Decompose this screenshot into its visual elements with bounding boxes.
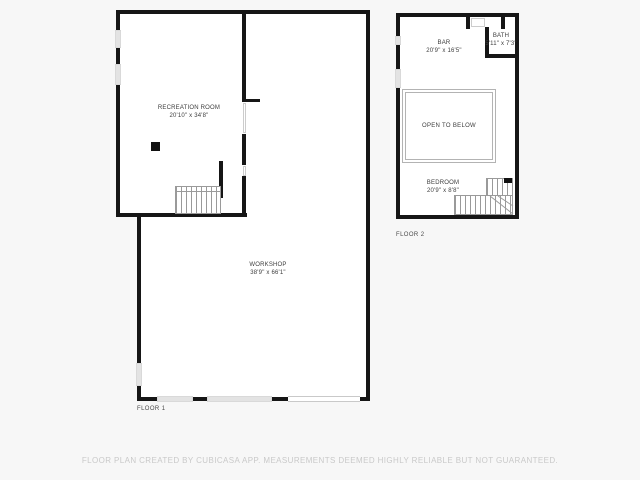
window-marker [136, 363, 142, 386]
open-to-below-area: OPEN TO BELOW [402, 89, 496, 163]
floor2-caption: FLOOR 2 [396, 232, 424, 238]
wall-right [366, 10, 370, 401]
wall-interior-stub [246, 99, 260, 102]
room-dims: 20'9" x 8'8" [383, 187, 503, 195]
room-dims: 38'9" x 66'1" [208, 269, 328, 277]
disclaimer-text: FLOOR PLAN CREATED BY CUBICASA APP. MEAS… [0, 456, 640, 465]
open-to-below-inner: OPEN TO BELOW [405, 92, 493, 160]
floorplan-page: { "colors": { "background": "#f7f7f7", "… [0, 0, 640, 480]
room-name: BEDROOM [383, 179, 503, 187]
wall-interior-lower [242, 176, 246, 217]
bedroom-label: BEDROOM 20'9" x 8'8" [383, 179, 503, 195]
floor1-caption: FLOOR 1 [137, 406, 165, 412]
window-marker [395, 69, 401, 88]
bath-label: BATH 5'11" x 7'3" [479, 32, 523, 48]
door-marker [243, 166, 246, 176]
wall-stub [466, 17, 470, 29]
staircase-tread-line [175, 191, 221, 192]
wall-interior-mid [242, 134, 246, 165]
room-name: BATH [479, 32, 523, 40]
wall-interior-upper [242, 14, 246, 102]
floor2-plan: OPEN TO BELOW BAR 20'9" x 16'5" BATH 5'1… [0, 0, 160, 260]
floor1-interior-lower [139, 216, 368, 399]
workshop-label: WORKSHOP 38'9" x 66'1" [208, 261, 328, 277]
room-dims: 20'9" x 16'5" [384, 47, 504, 55]
door-marker [471, 18, 485, 27]
wall-stub [501, 17, 505, 29]
wall-bottom [396, 215, 519, 219]
window-marker [157, 396, 193, 402]
garage-opening [288, 396, 360, 402]
window-marker [207, 396, 272, 402]
room-name: WORKSHOP [208, 261, 328, 269]
open-to-below-label: OPEN TO BELOW [422, 123, 476, 129]
room-dims: 5'11" x 7'3" [479, 40, 523, 48]
